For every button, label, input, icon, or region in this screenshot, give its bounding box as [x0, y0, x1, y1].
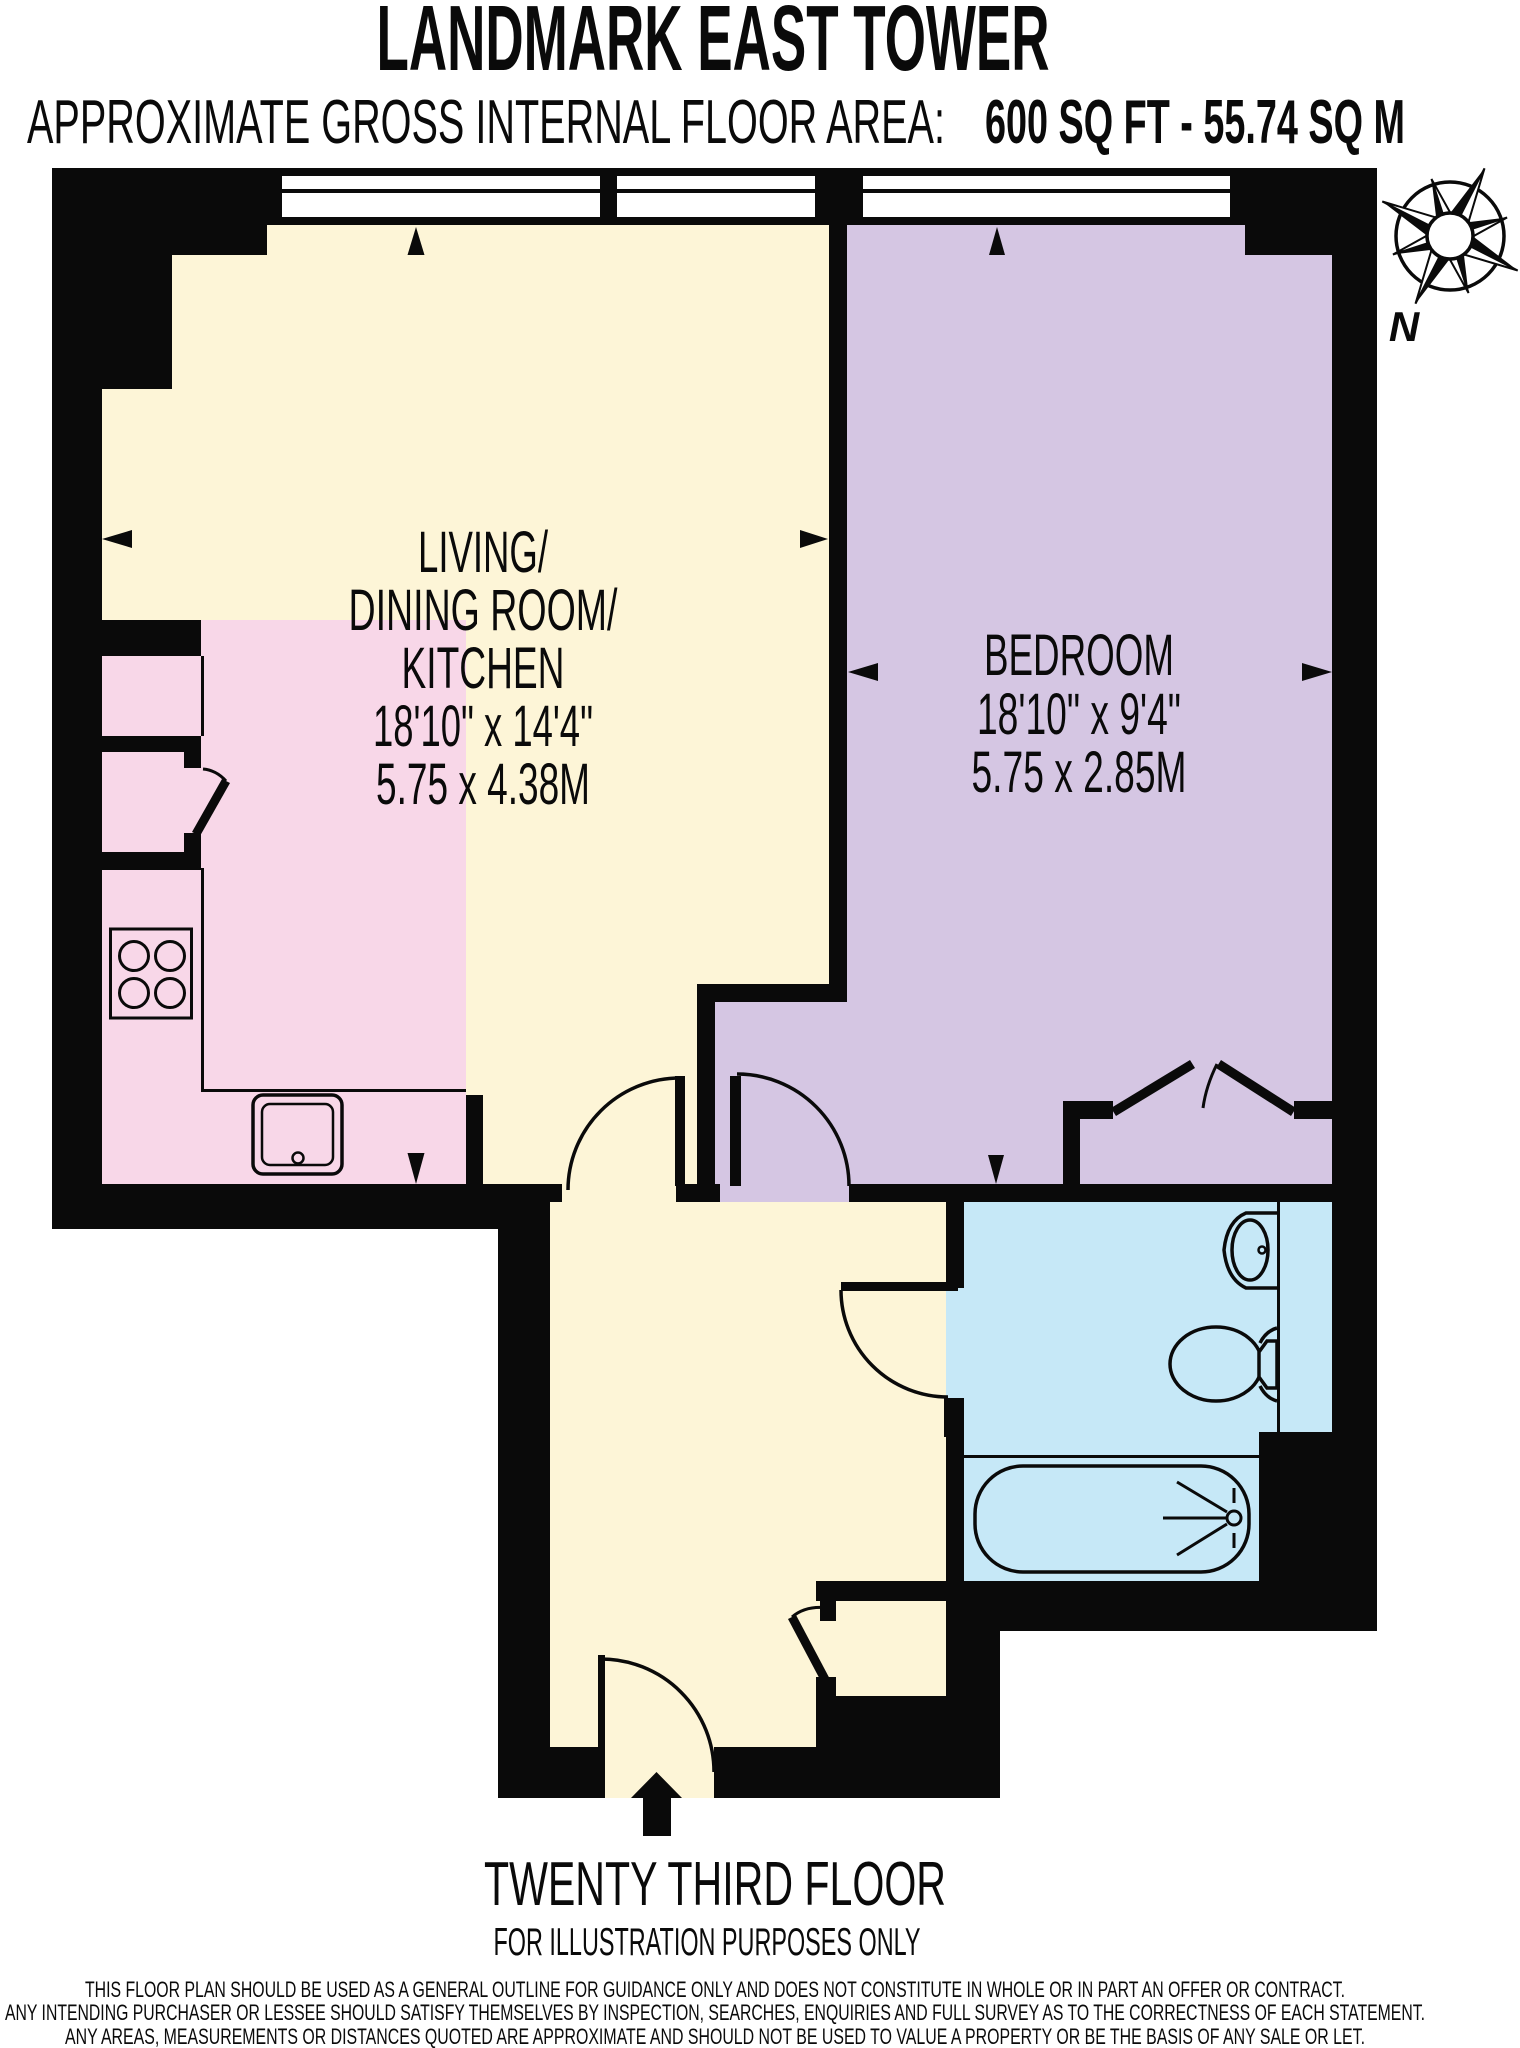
svg-text:LANDMARK EAST TOWER: LANDMARK EAST TOWER [377, 0, 1050, 90]
svg-text:BEDROOM: BEDROOM [984, 623, 1174, 688]
svg-text:N: N [1389, 303, 1421, 350]
svg-text:THIS FLOOR PLAN SHOULD BE USED: THIS FLOOR PLAN SHOULD BE USED AS A GENE… [85, 1977, 1345, 2002]
svg-text:ANY AREAS, MEASUREMENTS OR DIS: ANY AREAS, MEASUREMENTS OR DISTANCES QUO… [65, 2024, 1365, 2048]
svg-text:5.75 x 4.38M: 5.75 x 4.38M [376, 752, 590, 817]
svg-text:ANY INTENDING PURCHASER OR LES: ANY INTENDING PURCHASER OR LESSEE SHOULD… [5, 2000, 1425, 2025]
svg-text:18'10" x 9'4": 18'10" x 9'4" [977, 682, 1181, 747]
svg-text:APPROXIMATE GROSS INTERNAL FLO: APPROXIMATE GROSS INTERNAL FLOOR AREA: [27, 88, 945, 157]
svg-text:TWENTY THIRD FLOOR: TWENTY THIRD FLOOR [484, 1850, 946, 1919]
svg-text:KITCHEN: KITCHEN [402, 636, 565, 701]
svg-text:5.75 x 2.85M: 5.75 x 2.85M [972, 740, 1187, 805]
svg-text:600 SQ FT - 55.74 SQ M: 600 SQ FT - 55.74 SQ M [985, 88, 1405, 157]
svg-text:LIVING/: LIVING/ [418, 520, 549, 585]
svg-text:18'10" x 14'4": 18'10" x 14'4" [373, 694, 593, 759]
svg-text:DINING ROOM/: DINING ROOM/ [349, 578, 619, 643]
svg-text:FOR ILLUSTRATION PURPOSES ONLY: FOR ILLUSTRATION PURPOSES ONLY [494, 1921, 921, 1964]
